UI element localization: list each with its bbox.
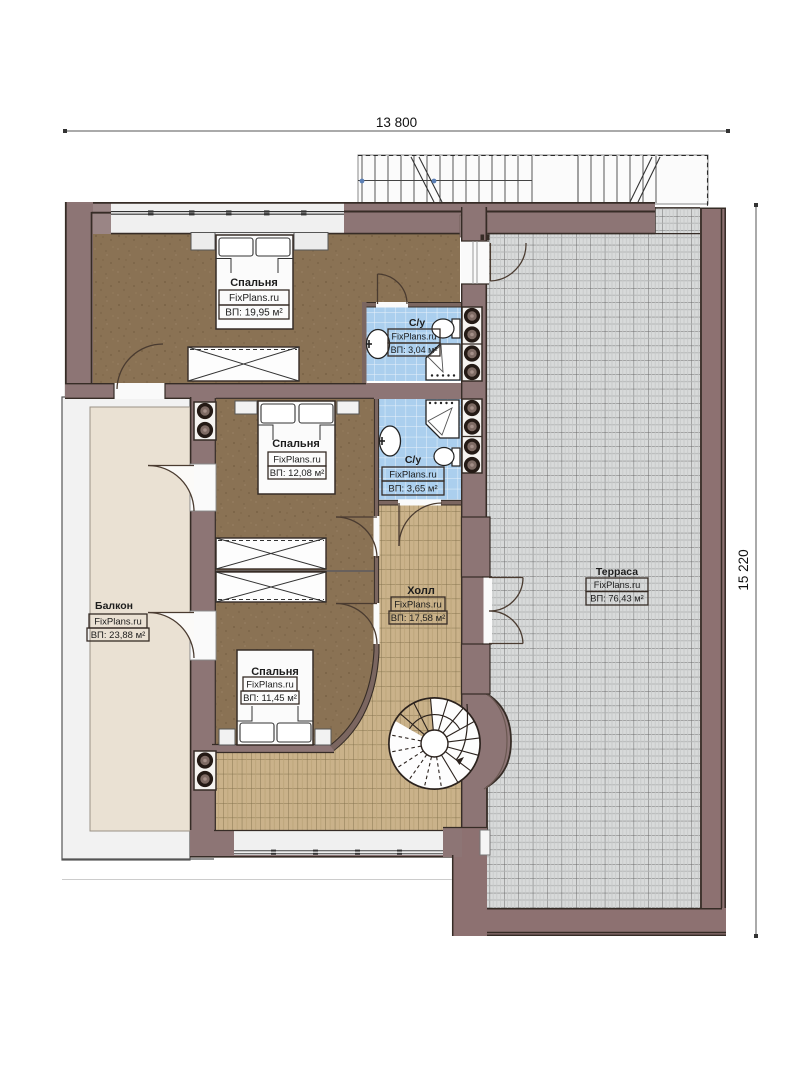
svg-text:13 800: 13 800: [376, 115, 417, 130]
svg-text:Терраса: Терраса: [596, 566, 638, 578]
svg-text:FixPlans.ru: FixPlans.ru: [229, 293, 279, 304]
svg-text:ВП: 11,45 м²: ВП: 11,45 м²: [243, 693, 297, 704]
svg-text:FixPlans.ru: FixPlans.ru: [391, 331, 436, 341]
svg-text:С/у: С/у: [409, 317, 426, 329]
svg-text:Холл: Холл: [407, 585, 435, 597]
svg-text:ВП: 17,58 м²: ВП: 17,58 м²: [391, 613, 446, 624]
svg-text:ВП: 76,43 м²: ВП: 76,43 м²: [590, 594, 643, 604]
svg-text:С/у: С/у: [405, 454, 422, 466]
svg-text:Спальня: Спальня: [251, 666, 299, 678]
svg-text:FixPlans.ru: FixPlans.ru: [394, 599, 442, 610]
svg-text:FixPlans.ru: FixPlans.ru: [246, 679, 294, 690]
svg-text:Балкон: Балкон: [95, 600, 133, 612]
svg-text:Спальня: Спальня: [230, 277, 278, 289]
svg-text:ВП: 3,04 м²: ВП: 3,04 м²: [391, 345, 438, 355]
svg-text:ВП: 23,88 м²: ВП: 23,88 м²: [91, 630, 146, 641]
svg-text:FixPlans.ru: FixPlans.ru: [594, 580, 641, 590]
svg-text:15 220: 15 220: [736, 549, 751, 590]
svg-text:FixPlans.ru: FixPlans.ru: [94, 616, 142, 627]
svg-text:ВП: 19,95 м²: ВП: 19,95 м²: [225, 307, 283, 318]
svg-text:ВП: 3,65 м²: ВП: 3,65 м²: [388, 483, 437, 494]
svg-text:FixPlans.ru: FixPlans.ru: [389, 469, 437, 480]
svg-text:ВП: 12,08 м²: ВП: 12,08 м²: [270, 468, 325, 479]
svg-text:Спальня: Спальня: [272, 438, 320, 450]
svg-text:FixPlans.ru: FixPlans.ru: [273, 454, 321, 465]
